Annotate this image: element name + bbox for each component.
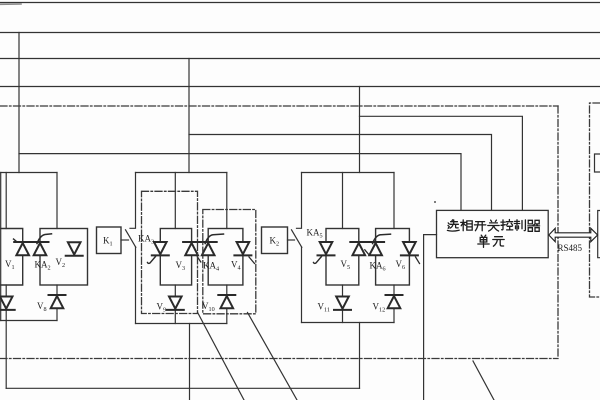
- svg-text:KA4: KA4: [203, 261, 219, 273]
- svg-text:V8: V8: [37, 301, 47, 313]
- svg-text:V5: V5: [341, 259, 351, 271]
- svg-text:KA3: KA3: [138, 234, 154, 246]
- svg-text:V11: V11: [318, 302, 330, 314]
- svg-text:KA2: KA2: [35, 260, 51, 272]
- svg-text:KA6: KA6: [370, 261, 386, 273]
- svg-text:V1: V1: [5, 259, 15, 271]
- svg-text:KA5: KA5: [307, 228, 323, 240]
- svg-text:K2: K2: [270, 236, 280, 248]
- svg-text:V4: V4: [231, 260, 241, 272]
- svg-text:RS485: RS485: [558, 243, 583, 253]
- svg-text:V6: V6: [396, 259, 406, 271]
- svg-text:V2: V2: [56, 257, 66, 269]
- svg-text:V3: V3: [176, 260, 186, 272]
- svg-text:K1: K1: [103, 236, 113, 248]
- svg-text:V9: V9: [157, 302, 167, 314]
- svg-text:V10: V10: [202, 301, 215, 313]
- svg-text:V12: V12: [373, 302, 386, 314]
